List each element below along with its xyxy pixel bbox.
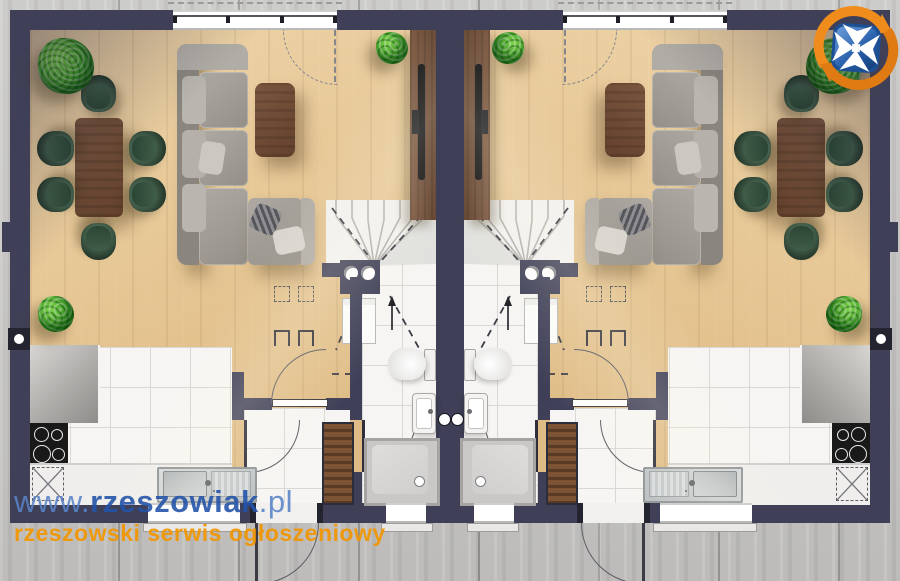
sofa-seat (199, 72, 248, 128)
kitchen-counter-side (30, 345, 100, 423)
window-mullion (333, 16, 337, 23)
sofa-armrest-top (652, 44, 723, 70)
living-room-window (173, 10, 337, 30)
potted-plant (38, 296, 74, 332)
dining-chair (826, 131, 863, 166)
wall-vestibule-bath (538, 277, 550, 420)
living-room-window (563, 10, 727, 30)
wall-pilaster (2, 222, 10, 252)
frame-symbol (610, 330, 626, 346)
wall-hall-vestibule (628, 398, 656, 410)
sink-drainer (649, 471, 689, 497)
watermark-www: www. (14, 484, 90, 519)
back-pillow (694, 76, 718, 124)
opening-symbol (610, 286, 626, 302)
opening-symbol (298, 286, 314, 302)
potted-plant (38, 38, 94, 94)
dining-chair (37, 177, 74, 212)
dining-chair (81, 223, 116, 260)
burner (851, 427, 866, 442)
window-frame-line (563, 15, 727, 17)
burner (849, 445, 867, 463)
vent-circle (14, 334, 24, 344)
faucet-dot (467, 409, 472, 414)
frame-symbol (274, 330, 290, 346)
bathroom-window (386, 503, 426, 523)
floorplan-image: www.rzeszowiak.pl rzeszowski serwis ogło… (0, 0, 900, 581)
potted-plant (492, 32, 524, 64)
tv-bracket (481, 110, 488, 134)
bathroom-window (474, 503, 514, 523)
unit-right (464, 30, 870, 503)
burner (52, 448, 65, 461)
watermark-tld: .pl (259, 484, 293, 519)
watermark-brand: rzeszowiak (90, 484, 259, 519)
sink-basin (693, 471, 737, 497)
roof-overhang-dashed (558, 2, 732, 4)
entrance-door-arc (581, 523, 642, 581)
back-pillow (694, 184, 718, 232)
back-pillow (182, 184, 206, 232)
dining-chair (129, 177, 166, 212)
logo-cross-icon (830, 22, 881, 73)
pipe-circle (438, 413, 451, 426)
window-mullion (563, 16, 567, 23)
burner (837, 429, 849, 441)
wall-pilaster (890, 222, 898, 252)
entrance-opening (582, 503, 645, 523)
throw-pillow (674, 140, 703, 175)
unit-left (30, 30, 436, 503)
burner (835, 448, 848, 461)
burner (51, 429, 63, 441)
dining-chair (129, 131, 166, 166)
roof-overhang-dashed (168, 2, 342, 4)
frame-symbol (298, 330, 314, 346)
shower-drain (414, 476, 425, 487)
wall-hall-vestibule (244, 398, 272, 410)
dining-table (75, 118, 123, 217)
logo-arrows-icon (812, 4, 900, 92)
sofa-chaise-end (301, 198, 315, 265)
window-mullion (616, 16, 620, 23)
window-mullion (226, 16, 230, 23)
potted-plant (376, 32, 408, 64)
watermark-tagline: rzeszowski serwis ogłoszeniowy (14, 522, 386, 545)
kitchen-door-leaf (653, 420, 656, 473)
kitchen-window (660, 503, 752, 523)
wall-hall-vestibule (326, 398, 350, 410)
bathroom-window-sill (381, 523, 433, 532)
dining-chair (734, 131, 771, 166)
opening-symbol (586, 286, 602, 302)
door-jamb (644, 503, 650, 523)
opening-symbol (274, 286, 290, 302)
dining-chair (734, 177, 771, 212)
tv-bracket (412, 110, 419, 134)
window-frame-line (173, 15, 337, 17)
watermark: www.rzeszowiak.pl rzeszowski serwis ogło… (14, 486, 386, 545)
basin-bowl (361, 266, 375, 280)
sink-faucet (689, 480, 695, 486)
tv-screen (418, 64, 425, 180)
window-mullion (173, 16, 177, 23)
kitchen-counter-side (800, 345, 870, 423)
wall-left (10, 10, 30, 523)
window-mullion (670, 16, 674, 23)
potted-plant (826, 296, 862, 332)
wall-kitchen-vestibule (232, 372, 244, 420)
door-jamb (577, 503, 583, 523)
rzeszowiak-logo (812, 4, 900, 92)
entrance-door-leaf (642, 523, 645, 581)
burner (34, 427, 49, 442)
bathroom-window-sill (467, 523, 519, 532)
dining-chair (826, 177, 863, 212)
fridge-symbol (836, 467, 868, 501)
sofa-seat (199, 188, 248, 265)
window-mullion (723, 16, 727, 23)
toilet-bowl (388, 348, 426, 380)
basin-bowl (525, 266, 539, 280)
vent-circle (876, 334, 886, 344)
frame-symbol (586, 330, 602, 346)
coffee-table (605, 83, 645, 157)
wall-kitchen-vestibule (656, 372, 668, 420)
window-mullion (280, 16, 284, 23)
shower-drain (475, 476, 486, 487)
faucet-dot (428, 409, 433, 414)
toilet-bowl (474, 348, 512, 380)
wall-hall-vestibule (550, 398, 574, 410)
back-pillow (182, 76, 206, 124)
pipe-circle (451, 413, 464, 426)
sofa-armrest-top (177, 44, 248, 70)
dining-table (777, 118, 825, 217)
coffee-table (255, 83, 295, 157)
dining-chair (37, 131, 74, 166)
slatted-wardrobe (546, 422, 578, 505)
wall-vestibule-bath (350, 277, 362, 420)
throw-pillow (198, 140, 227, 175)
dining-chair (784, 223, 819, 260)
burner (33, 445, 51, 463)
kitchen-window-sill (653, 523, 757, 532)
